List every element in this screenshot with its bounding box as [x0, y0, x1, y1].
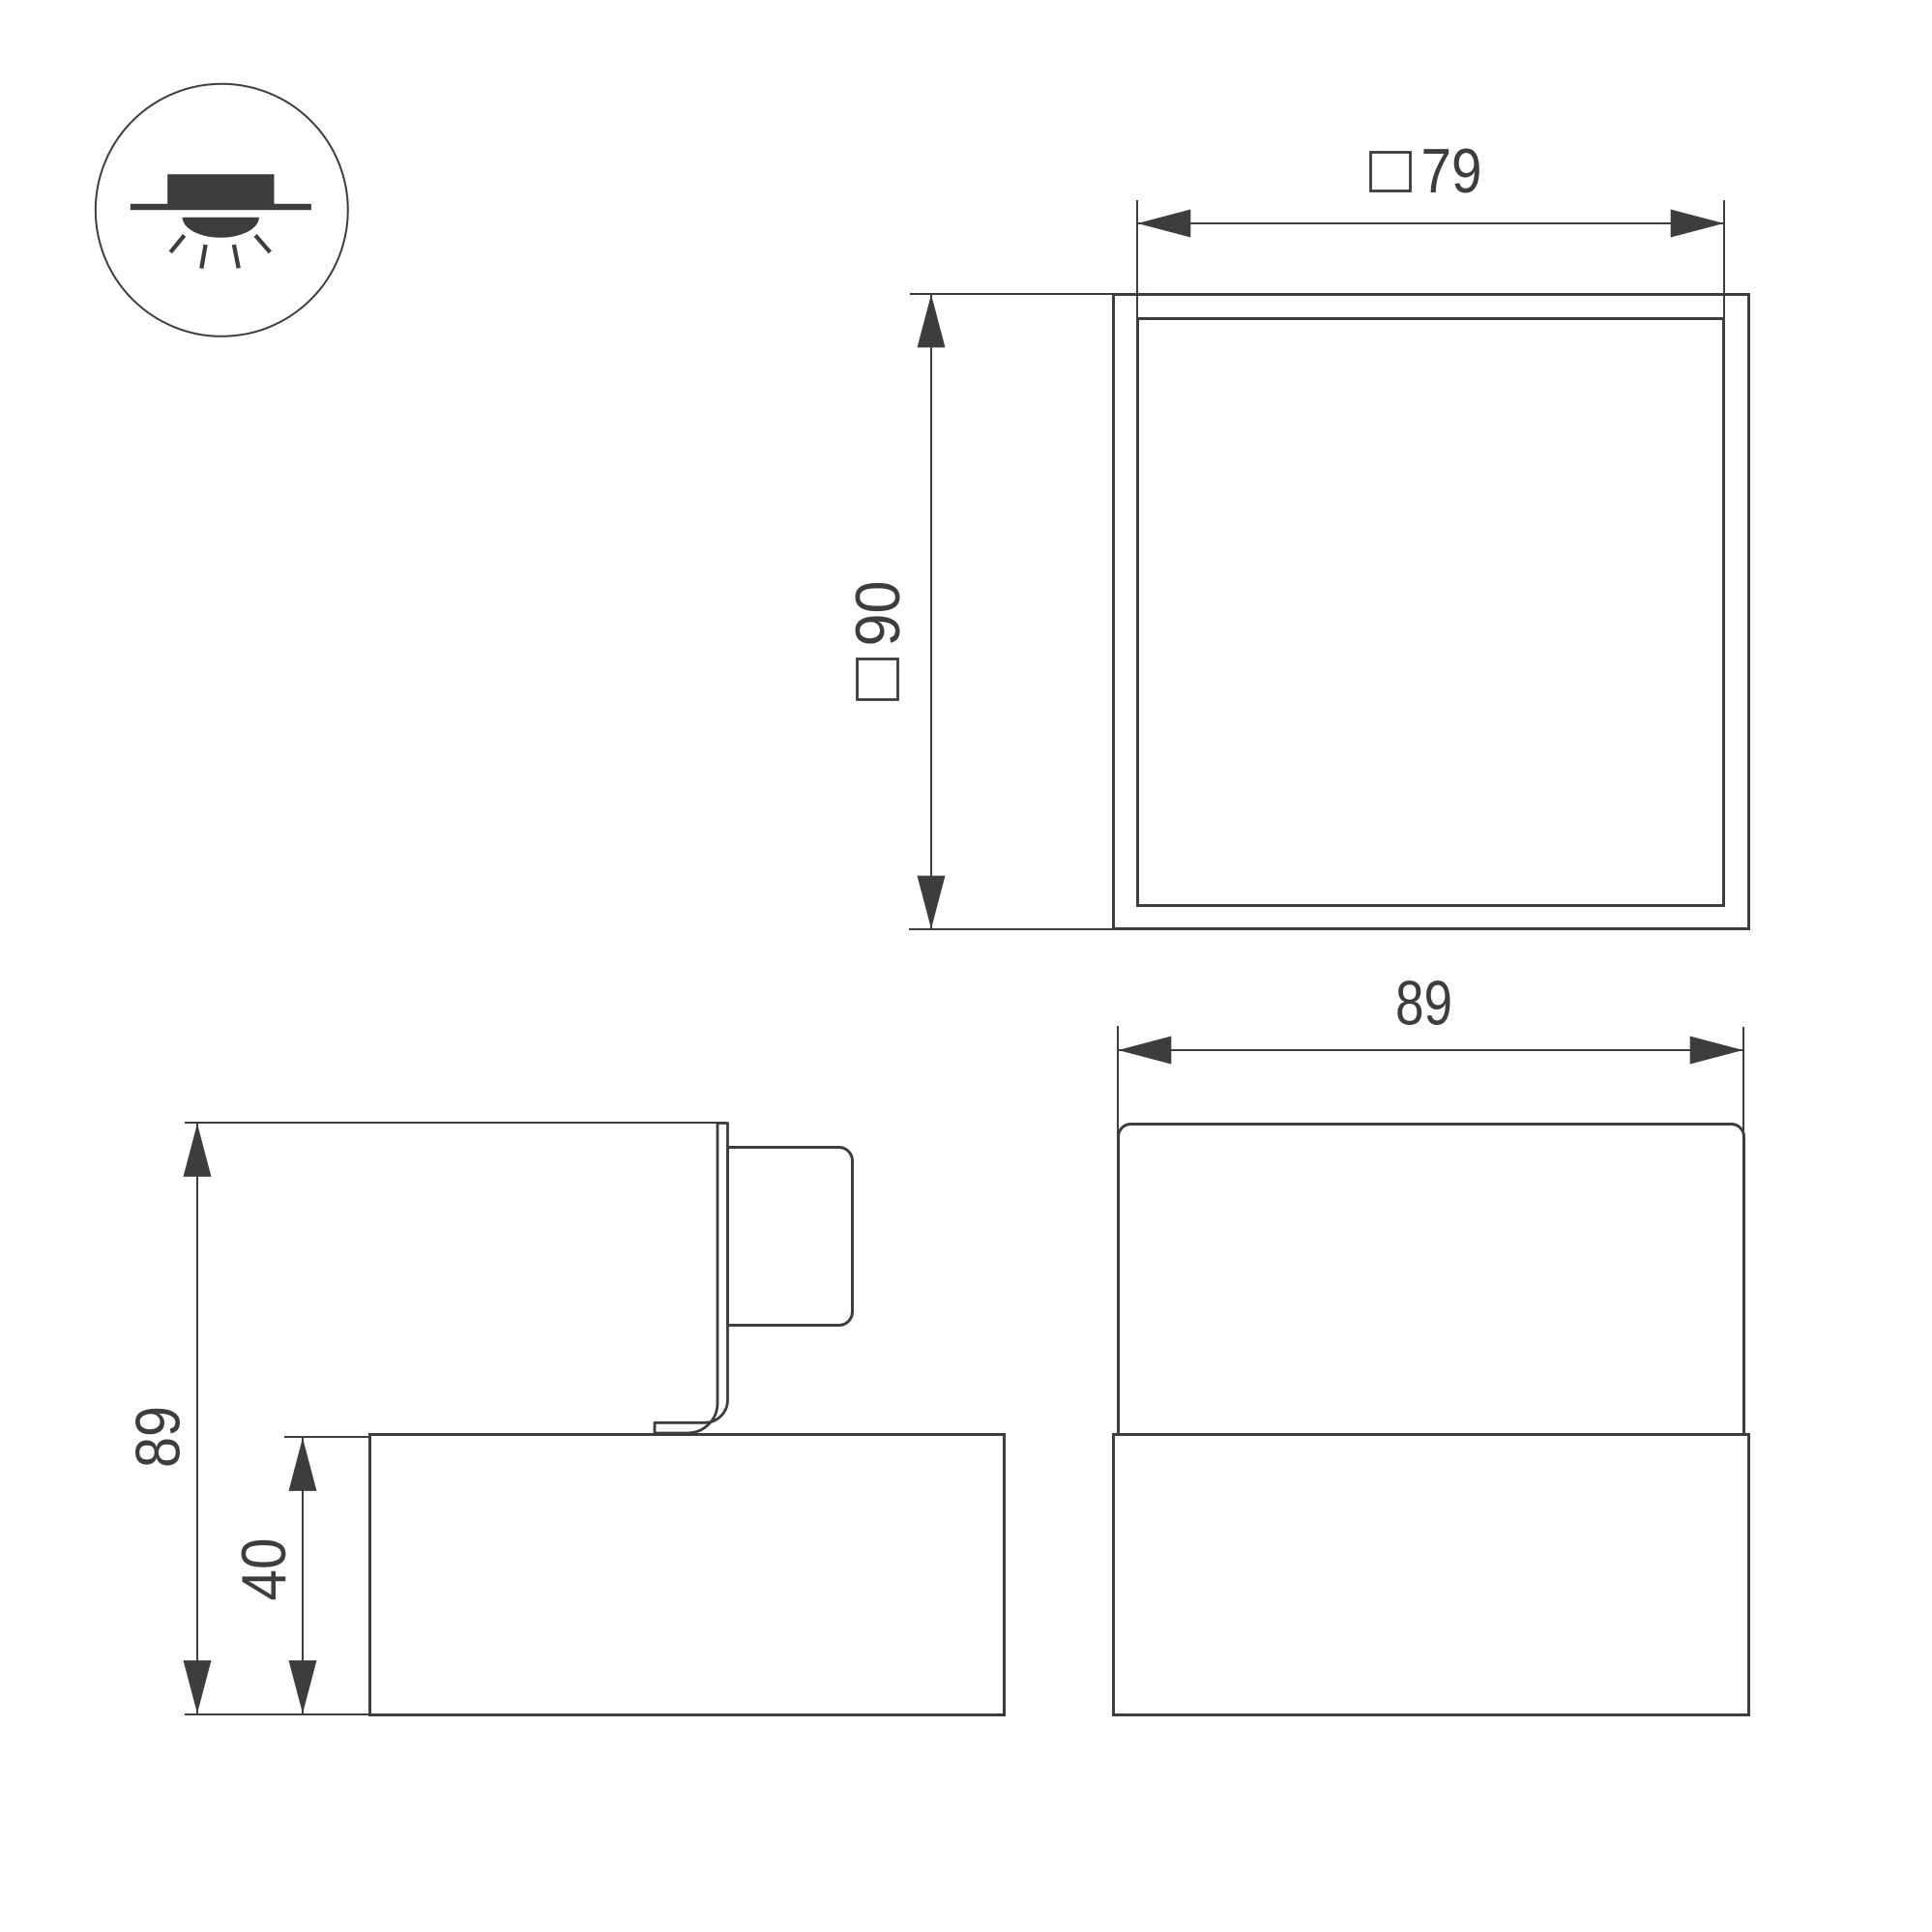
- svg-text:40: 40: [228, 1538, 299, 1601]
- svg-text:89: 89: [1395, 968, 1452, 1039]
- svg-text:79: 79: [1421, 135, 1482, 206]
- svg-text:89: 89: [123, 1406, 193, 1468]
- svg-text:90: 90: [842, 581, 913, 647]
